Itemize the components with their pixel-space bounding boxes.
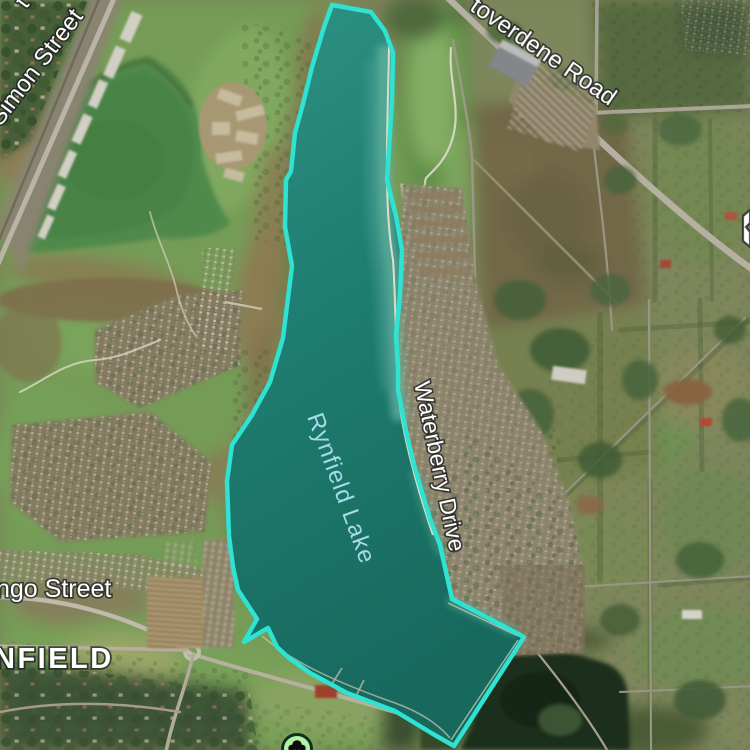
svg-text:NFIELD: NFIELD [0, 643, 114, 675]
svg-text:ngo Street: ngo Street [0, 575, 111, 603]
